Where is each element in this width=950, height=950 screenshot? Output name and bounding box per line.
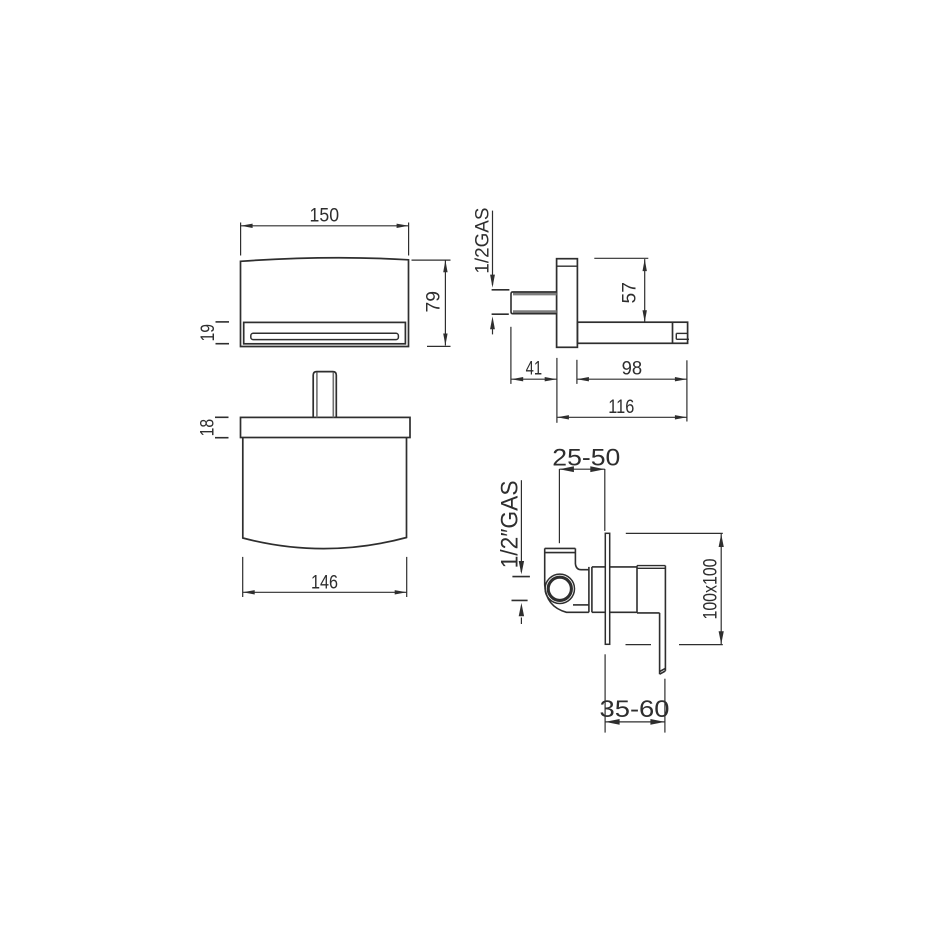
svg-text:1/2GAS: 1/2GAS bbox=[472, 208, 493, 274]
svg-text:41: 41 bbox=[526, 359, 543, 380]
svg-text:25-50: 25-50 bbox=[552, 445, 620, 472]
svg-text:150: 150 bbox=[310, 206, 340, 227]
svg-text:18: 18 bbox=[197, 419, 218, 437]
svg-text:57: 57 bbox=[620, 282, 641, 304]
svg-text:1/2″GAS: 1/2″GAS bbox=[497, 480, 524, 568]
svg-text:79: 79 bbox=[424, 291, 445, 313]
svg-text:116: 116 bbox=[608, 397, 634, 418]
svg-text:100x100: 100x100 bbox=[701, 559, 722, 620]
svg-text:146: 146 bbox=[311, 572, 338, 593]
svg-text:98: 98 bbox=[622, 358, 643, 379]
svg-text:19: 19 bbox=[198, 324, 219, 342]
svg-text:35-60: 35-60 bbox=[600, 696, 670, 723]
